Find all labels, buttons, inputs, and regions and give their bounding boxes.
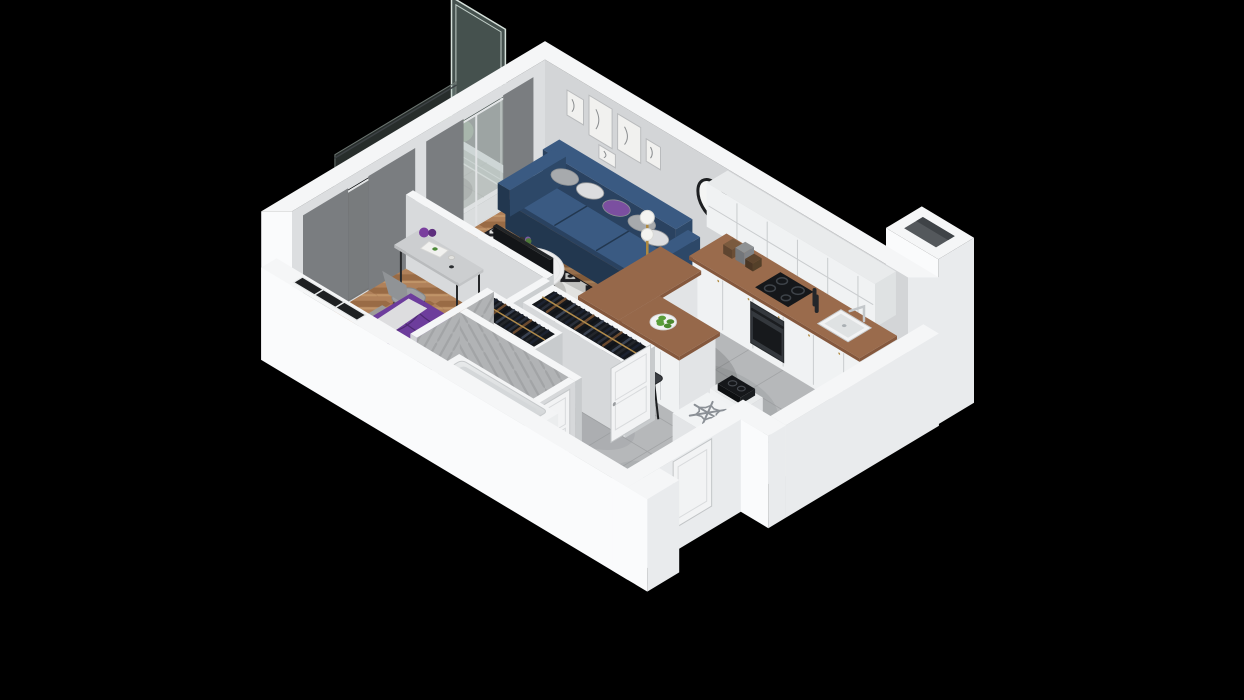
pepper-mills	[815, 290, 817, 311]
floor-plan-render	[0, 0, 1244, 700]
screenshot-root	[0, 0, 1244, 700]
